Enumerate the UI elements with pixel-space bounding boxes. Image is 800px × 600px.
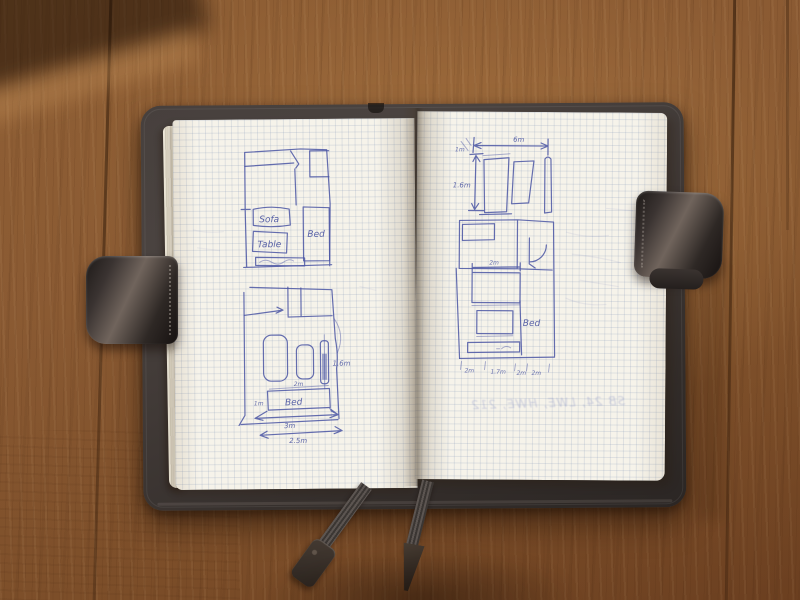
window-hatched-1 <box>472 273 520 303</box>
bleed-through-marks <box>193 228 376 292</box>
sofa-label: Sofa <box>259 215 279 225</box>
cover-spine-notch <box>368 103 384 113</box>
floor-plan-living-room: Sofa Table Bed <box>241 149 332 268</box>
wall-elevation-sketch: 6m 1m 1.6m <box>453 135 553 215</box>
pen-loop-right <box>634 190 725 279</box>
dimension-room-width: 3m <box>284 422 296 430</box>
plank-seam <box>786 0 789 230</box>
apartment-floor-plan: 2m Bed 2m 1.7m 2m 2m <box>455 219 555 377</box>
wardrobe-outline <box>263 335 287 381</box>
panel-3 <box>545 157 552 213</box>
right-page: 6m 1m 1.6m 2m <box>415 111 668 481</box>
door-swing <box>529 238 546 268</box>
dimension-left-of-bed: 1m <box>254 400 264 407</box>
dimension-right: 1.6m <box>332 360 350 368</box>
window-hatched-2 <box>477 311 513 334</box>
bed-label: Bed <box>285 398 303 409</box>
dimension-small: 1m <box>455 146 465 153</box>
table-label: Table <box>257 240 281 250</box>
floor-plan-sketches-left: Sofa Table Bed <box>172 118 417 490</box>
dimension-top: 6m <box>513 136 525 144</box>
dimension-bottom-4: 2m <box>531 370 541 377</box>
bed-hatched: Bed <box>267 385 330 410</box>
dimension-bottom-2: 1.7m <box>490 369 506 376</box>
floor-plan-bedroom: 1.6m Bed 2m 1m 3m 2.5m <box>238 287 352 446</box>
dimension-window: 2m <box>489 260 499 267</box>
cabinet-outline <box>296 345 313 379</box>
dimension-bottom-1: 2m <box>464 367 474 374</box>
dimension-bed-width: 2.5m <box>289 437 307 445</box>
wooden-table-surface: Sofa Table Bed <box>0 0 800 600</box>
photographer-shadow <box>255 545 585 600</box>
bleed-through-marks <box>566 208 633 305</box>
dimension-height: 1.6m <box>453 181 471 189</box>
pen-loop-left <box>86 256 178 344</box>
wood-grain-streak <box>698 260 729 520</box>
bed-label: Bed <box>307 230 325 240</box>
dimension-above-bed: 2m <box>294 381 304 388</box>
dimension-bottom-3: 2m <box>516 370 526 377</box>
floor-plan-sketches-right: 6m 1m 1.6m 2m <box>415 111 668 481</box>
panel-2 <box>512 161 534 204</box>
left-page: Sofa Table Bed <box>172 118 417 490</box>
panel-1 <box>484 158 509 213</box>
bed-label: Bed <box>523 319 541 329</box>
